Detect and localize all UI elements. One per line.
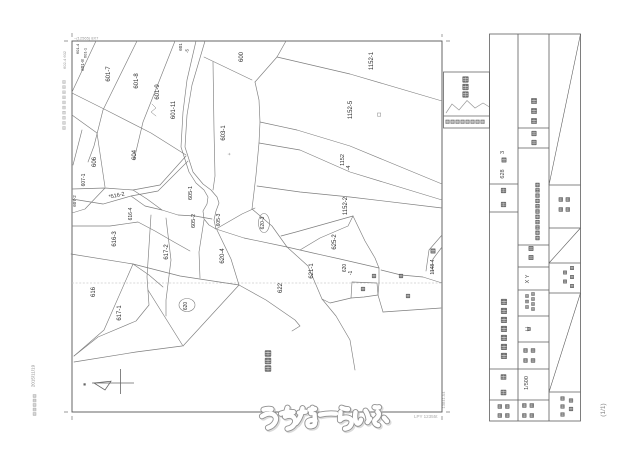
svg-text:-4: -4 — [346, 166, 352, 171]
svg-text:620-4: 620-4 — [220, 248, 226, 264]
svg-text:1148-4: 1148-4 — [430, 259, 436, 274]
svg-text:616: 616 — [91, 286, 97, 297]
svg-text:616-4: 616-4 — [128, 207, 134, 220]
svg-text:LPY 12355t: LPY 12355t — [414, 414, 438, 419]
svg-text:605-1: 605-1 — [188, 186, 194, 200]
svg-text:13841 A4: 13841 A4 — [441, 391, 446, 409]
svg-text:605-2: 605-2 — [191, 214, 197, 228]
svg-text:603-1: 603-1 — [221, 125, 227, 141]
svg-text:601: 601 — [178, 43, 183, 51]
svg-text:*516-2: *516-2 — [108, 191, 125, 200]
svg-text:3: 3 — [500, 151, 506, 154]
svg-text:-5: -5 — [185, 49, 190, 53]
svg-text:+: + — [227, 152, 233, 155]
svg-text:601-1: 601-1 — [83, 47, 88, 58]
svg-text:1/500: 1/500 — [524, 376, 530, 390]
svg-text:617-2: 617-2 — [164, 244, 170, 260]
svg-text:606: 606 — [92, 156, 98, 167]
svg-text:620-3: 620-3 — [260, 216, 266, 229]
svg-text:1152-2: 1152-2 — [343, 196, 349, 215]
svg-text:1152-1: 1152-1 — [369, 51, 375, 70]
svg-text:(1/1): (1/1) — [600, 403, 607, 416]
svg-text:602-4 602: 602-4 602 — [62, 50, 67, 69]
svg-text:621-1: 621-1 — [309, 263, 315, 279]
svg-text:601-11: 601-11 — [171, 100, 177, 119]
svg-text:620: 620 — [183, 302, 189, 311]
svg-text:601-8: 601-8 — [80, 59, 85, 71]
svg-text:X Y: X Y — [525, 274, 531, 283]
svg-text:607-2: 607-2 — [72, 195, 77, 207]
svg-text:601-4: 601-4 — [75, 43, 80, 54]
svg-text:601-8: 601-8 — [134, 73, 140, 89]
svg-text:601-7: 601-7 — [106, 66, 112, 82]
svg-text:628: 628 — [500, 169, 506, 178]
svg-text:~(12565) 8X7: ~(12565) 8X7 — [74, 36, 99, 41]
svg-text:607-1: 607-1 — [81, 173, 87, 186]
svg-text:600: 600 — [239, 51, 245, 62]
svg-text:1152-5: 1152-5 — [348, 100, 354, 119]
svg-text:622: 622 — [278, 282, 284, 293]
svg-text:1152: 1152 — [340, 154, 346, 166]
svg-text:616-3: 616-3 — [112, 231, 118, 247]
svg-text:601-9: 601-9 — [155, 84, 161, 100]
svg-text:-1: -1 — [348, 271, 354, 276]
svg-text:604: 604 — [132, 149, 138, 160]
svg-text:605-3: 605-3 — [216, 213, 222, 226]
svg-text:625-2: 625-2 — [332, 234, 338, 250]
svg-text:617-1: 617-1 — [117, 305, 123, 321]
svg-text:2015/11/19: 2015/11/19 — [31, 364, 36, 387]
